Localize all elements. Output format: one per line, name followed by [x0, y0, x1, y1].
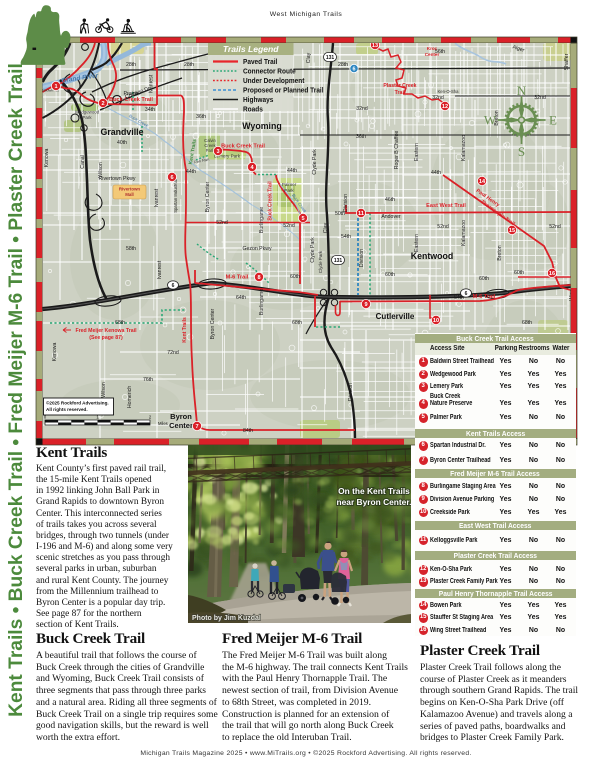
svg-text:52nd: 52nd — [549, 224, 561, 230]
svg-text:64th: 64th — [236, 295, 246, 301]
svg-text:Clay: Clay — [323, 222, 329, 233]
svg-text:58th: 58th — [126, 246, 136, 252]
svg-text:54th: 54th — [341, 234, 351, 240]
svg-text:Roads: Roads — [243, 106, 263, 113]
svg-text:Kenowa: Kenowa — [52, 343, 58, 362]
svg-text:1: 1 — [54, 84, 57, 90]
svg-text:Wyoming: Wyoming — [242, 121, 281, 131]
svg-text:N: N — [517, 83, 527, 98]
svg-text:Park: Park — [284, 188, 294, 193]
svg-text:40th: 40th — [117, 140, 127, 146]
svg-text:©2025 Rockford Advertising.: ©2025 Rockford Advertising. — [46, 400, 109, 406]
svg-text:52nd: 52nd — [216, 220, 228, 226]
svg-text:Park: Park — [82, 115, 92, 120]
svg-text:10: 10 — [433, 318, 439, 324]
svg-text:M-6 Trail: M-6 Trail — [226, 275, 249, 281]
svg-text:13: 13 — [372, 43, 378, 49]
svg-text:32nd: 32nd — [356, 106, 368, 112]
svg-text:Homerich: Homerich — [127, 386, 133, 408]
svg-text:60th: 60th — [479, 276, 489, 282]
svg-text:68th: 68th — [292, 320, 302, 326]
svg-text:36th: 36th — [196, 114, 206, 120]
svg-text:Eastern: Eastern — [414, 234, 420, 252]
svg-text:Proposed or Planned Trail: Proposed or Planned Trail — [243, 87, 324, 94]
svg-text:36th: 36th — [356, 134, 366, 140]
svg-text:14: 14 — [479, 179, 486, 185]
svg-text:Trail: Trail — [395, 90, 406, 96]
svg-text:6: 6 — [170, 175, 173, 181]
svg-text:Gezon Pkwy: Gezon Pkwy — [242, 246, 272, 252]
svg-text:Wilson: Wilson — [98, 162, 104, 178]
svg-text:Wilson: Wilson — [101, 382, 107, 398]
svg-text:72nd: 72nd — [167, 350, 179, 356]
svg-text:15: 15 — [509, 228, 515, 234]
svg-text:Clyde Park: Clyde Park — [318, 250, 323, 273]
svg-text:131: 131 — [326, 55, 335, 61]
svg-text:Buck Creek Trail: Buck Creek Trail — [268, 181, 274, 221]
svg-text:W: W — [484, 113, 497, 128]
svg-text:Kroc: Kroc — [427, 46, 438, 51]
svg-text:S: S — [518, 144, 525, 159]
svg-text:11: 11 — [358, 211, 364, 217]
svg-text:3: 3 — [216, 149, 219, 155]
svg-text:32nd: 32nd — [534, 95, 546, 101]
svg-text:Ken-O-Sha: Ken-O-Sha — [438, 89, 460, 94]
svg-text:52nd: 52nd — [437, 224, 449, 230]
svg-text:Cutlerville: Cutlerville — [376, 312, 415, 321]
svg-text:28th: 28th — [184, 62, 194, 68]
svg-text:All rights reserved.: All rights reserved. — [46, 407, 88, 412]
svg-text:Kalamazoo: Kalamazoo — [461, 135, 467, 161]
svg-text:Shaffer: Shaffer — [564, 53, 570, 70]
svg-text:6: 6 — [353, 67, 356, 73]
svg-text:68th: 68th — [522, 320, 532, 326]
svg-text:Division: Division — [359, 249, 365, 267]
svg-text:Center: Center — [425, 52, 440, 57]
svg-text:12: 12 — [442, 104, 448, 110]
svg-text:60th: 60th — [514, 270, 524, 276]
svg-text:Clyde Park: Clyde Park — [312, 149, 318, 175]
svg-text:16: 16 — [549, 271, 555, 277]
svg-text:60th: 60th — [385, 272, 395, 278]
svg-text:Miles: Miles — [158, 421, 168, 426]
svg-text:Buck Creek Trail: Buck Creek Trail — [221, 144, 265, 150]
svg-text:Rivertown: Rivertown — [119, 187, 141, 192]
svg-text:76th: 76th — [143, 377, 153, 383]
svg-text:Kent Trails: Kent Trails — [182, 317, 188, 343]
svg-text:Under Development: Under Development — [243, 78, 305, 85]
svg-text:6: 6 — [172, 283, 175, 289]
svg-text:Breton: Breton — [497, 245, 503, 260]
svg-text:Eastern: Eastern — [414, 143, 420, 161]
svg-text:Kenowa: Kenowa — [44, 149, 50, 168]
svg-text:131: 131 — [334, 258, 343, 264]
svg-text:Canal: Canal — [80, 155, 86, 169]
svg-text:Division: Division — [348, 383, 354, 401]
svg-text:44th: 44th — [431, 170, 441, 176]
svg-text:6: 6 — [465, 291, 468, 297]
svg-text:5: 5 — [301, 216, 304, 222]
svg-text:Palmer: Palmer — [282, 182, 297, 187]
svg-text:Center: Center — [169, 421, 193, 430]
svg-text:M-6 Trail: M-6 Trail — [473, 294, 496, 300]
svg-text:Burlingame: Burlingame — [259, 207, 265, 233]
svg-text:Andover: Andover — [381, 214, 401, 220]
svg-text:Paved Trail: Paved Trail — [243, 59, 277, 66]
svg-text:84th: 84th — [243, 428, 253, 434]
svg-text:Grandville: Grandville — [100, 127, 143, 137]
svg-text:60th: 60th — [290, 274, 300, 280]
svg-text:32nd: 32nd — [432, 95, 444, 101]
svg-text:7: 7 — [195, 424, 198, 430]
svg-text:68th: 68th — [115, 320, 125, 326]
svg-text:Burlingame: Burlingame — [259, 289, 265, 315]
svg-text:Spartan Industrial: Spartan Industrial — [173, 179, 178, 213]
svg-text:(See page 87): (See page 87) — [89, 335, 123, 341]
svg-text:44th: 44th — [287, 168, 297, 174]
svg-text:near Byron Center.: near Byron Center. — [337, 497, 411, 507]
svg-text:Wedgewood: Wedgewood — [75, 110, 100, 115]
svg-text:Ivanrest: Ivanrest — [154, 188, 160, 207]
svg-text:Ivanrest: Ivanrest — [157, 260, 163, 279]
svg-text:28th: 28th — [126, 62, 136, 68]
svg-text:Byron: Byron — [170, 412, 192, 421]
svg-text:Kalamazoo: Kalamazoo — [461, 220, 467, 246]
svg-text:E: E — [549, 113, 557, 128]
svg-text:Byron Center: Byron Center — [210, 308, 216, 339]
svg-text:Division: Division — [343, 194, 349, 212]
svg-text:46th: 46th — [385, 197, 395, 203]
svg-text:2: 2 — [101, 101, 104, 107]
svg-text:8: 8 — [257, 275, 260, 281]
svg-text:Plaster Creek: Plaster Creek — [383, 83, 416, 89]
svg-text:28th: 28th — [338, 62, 348, 68]
svg-text:Roger B Chaffee: Roger B Chaffee — [394, 131, 400, 170]
svg-text:Byron Center: Byron Center — [205, 181, 211, 212]
svg-text:Trails Legend: Trails Legend — [223, 44, 279, 54]
svg-text:52nd: 52nd — [283, 223, 295, 229]
svg-text:Rivertown Pkwy: Rivertown Pkwy — [99, 176, 136, 182]
svg-text:Highways: Highways — [243, 97, 274, 104]
svg-text:9: 9 — [364, 302, 367, 308]
svg-text:Clyde Park: Clyde Park — [310, 237, 316, 263]
svg-text:34th: 34th — [145, 107, 155, 113]
svg-text:East West Trail: East West Trail — [426, 203, 466, 209]
svg-text:Fred Meijer Kenowa Trail: Fred Meijer Kenowa Trail — [75, 328, 137, 334]
svg-text:Connector Route: Connector Route — [243, 68, 296, 75]
svg-text:44th: 44th — [186, 169, 196, 175]
svg-text:Clay: Clay — [306, 52, 312, 63]
svg-text:On the Kent Trails: On the Kent Trails — [338, 486, 410, 496]
svg-text:Photo by Jim Kuzdal: Photo by Jim Kuzdal — [192, 615, 261, 622]
svg-text:Mall: Mall — [125, 192, 134, 197]
